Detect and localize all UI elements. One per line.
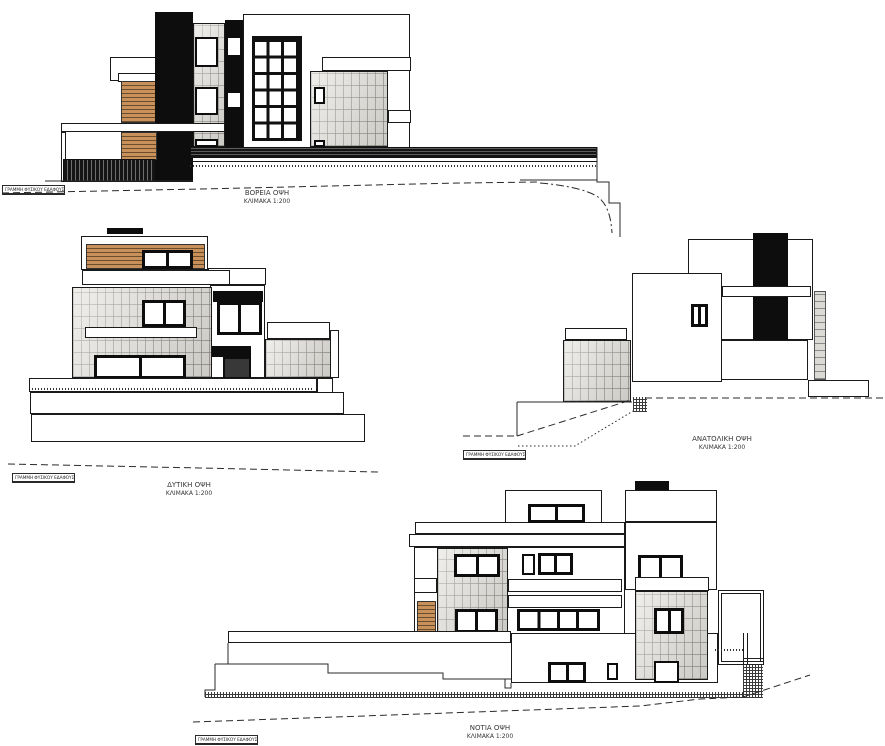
black-header — [213, 291, 263, 302]
elevation-scale: ΚΛΙΜΑΚΑ 1:200 — [244, 198, 290, 205]
terrace-slab — [228, 631, 511, 643]
wood-cladding — [121, 81, 157, 123]
footing-dotted-band — [205, 692, 743, 698]
window-pair — [528, 504, 585, 523]
canopy-slab — [388, 110, 411, 123]
window — [228, 93, 240, 107]
roof-slab — [409, 534, 625, 547]
window-pair — [654, 608, 684, 634]
base-slab — [808, 380, 869, 397]
west-ground-line — [8, 464, 378, 472]
tower-parapet — [625, 490, 717, 522]
window — [607, 663, 618, 680]
east-platform-outline — [517, 402, 632, 436]
window — [654, 661, 679, 683]
window-pair — [538, 553, 573, 575]
balcony-slab — [85, 327, 197, 338]
elevation-title: ΝΟΤΙΑ ΟΨΗ — [470, 724, 510, 732]
window-pair — [142, 250, 193, 269]
masonry-wall — [563, 340, 631, 402]
window — [691, 304, 708, 327]
retaining-wall — [31, 414, 365, 442]
stair-hatch — [743, 665, 763, 698]
ground-line-label: ΓΡΑΜΜΗ ΦΥΣΙΚΟΥ ΕΔΑΦΟΥΣ — [195, 735, 258, 745]
window-pair — [455, 609, 498, 633]
large-window — [94, 355, 186, 379]
window-row — [517, 609, 600, 631]
black-core-wall — [155, 12, 193, 182]
chimney — [107, 228, 143, 234]
window-pair — [142, 300, 186, 327]
ladder-strip — [814, 291, 826, 380]
parapet — [267, 322, 330, 339]
parapet — [414, 578, 437, 593]
wall — [632, 273, 722, 382]
fence-band — [190, 147, 597, 158]
floor-slab — [82, 270, 230, 285]
fence-rail-line — [190, 161, 597, 162]
window — [522, 554, 535, 575]
window — [195, 87, 218, 115]
parapet — [565, 328, 627, 340]
ground-line-label: ΓΡΑΜΜΗ ΦΥΣΙΚΟΥ ΕΔΑΦΟΥΣ — [463, 450, 526, 460]
dark-window — [223, 357, 251, 379]
carport-slab — [61, 123, 225, 132]
landing-dotted-line — [715, 649, 743, 651]
elevation-title: ΒΟΡΕΙΑ ΟΨΗ — [245, 189, 289, 197]
balcony-slab — [508, 579, 622, 592]
north-ground-curve — [540, 183, 612, 233]
stair-hatch — [633, 397, 647, 412]
terrace-dotted-line — [32, 388, 314, 390]
floor-band — [508, 595, 622, 608]
fence-dotted-line — [190, 165, 597, 167]
window — [314, 87, 325, 104]
ground-line-label: ΓΡΑΜΜΗ ΦΥΣΙΚΟΥ ΕΔΑΦΟΥΣ — [2, 185, 65, 195]
elevation-sheet: ΓΡΑΜΜΗ ΦΥΣΙΚΟΥ ΕΔΑΦΟΥΣ ΒΟΡΕΙΑ ΟΨΗ ΚΛΙΜΑΚ… — [0, 0, 885, 746]
window — [228, 38, 240, 55]
stair-treads — [743, 656, 763, 665]
elevation-scale: ΚΛΙΜΑΚΑ 1:200 — [166, 490, 212, 497]
elevation-scale: ΚΛΙΜΑΚΑ 1:200 — [699, 444, 745, 451]
wall — [717, 340, 808, 380]
wood-cladding — [121, 132, 157, 160]
wood-cladding — [417, 601, 436, 633]
elevation-scale: ΚΛΙΜΑΚΑ 1:200 — [467, 733, 513, 740]
window-pair — [548, 662, 586, 683]
railing — [63, 159, 155, 182]
masonry-wall — [310, 71, 388, 147]
south-terrace-steps — [205, 643, 511, 697]
retaining-wall — [30, 392, 344, 414]
black-header — [210, 346, 251, 357]
masonry-wall — [265, 339, 331, 378]
ground-line-label: ΓΡΑΜΜΗ ΦΥΣΙΚΟΥ ΕΔΑΦΟΥΣ — [12, 473, 75, 483]
window — [195, 139, 218, 147]
stair-annex — [718, 590, 764, 665]
balcony-slab — [635, 577, 709, 591]
curtain-wall-grid-window — [252, 36, 302, 141]
window — [314, 140, 325, 147]
roof-slab — [415, 522, 625, 534]
east-stair-dotted-line — [518, 411, 633, 446]
window — [195, 37, 218, 67]
window-pair — [454, 554, 500, 577]
wall-edge — [330, 330, 339, 378]
roof-slab — [322, 57, 411, 71]
elevation-title: ΔΥΤΙΚΗ ΟΨΗ — [167, 481, 211, 489]
east-ground-line — [463, 398, 885, 436]
window-pair — [217, 302, 262, 335]
elevation-title: ΑΝΑΤΟΛΙΚΗ ΟΨΗ — [692, 435, 752, 443]
roof-slab — [722, 286, 811, 297]
